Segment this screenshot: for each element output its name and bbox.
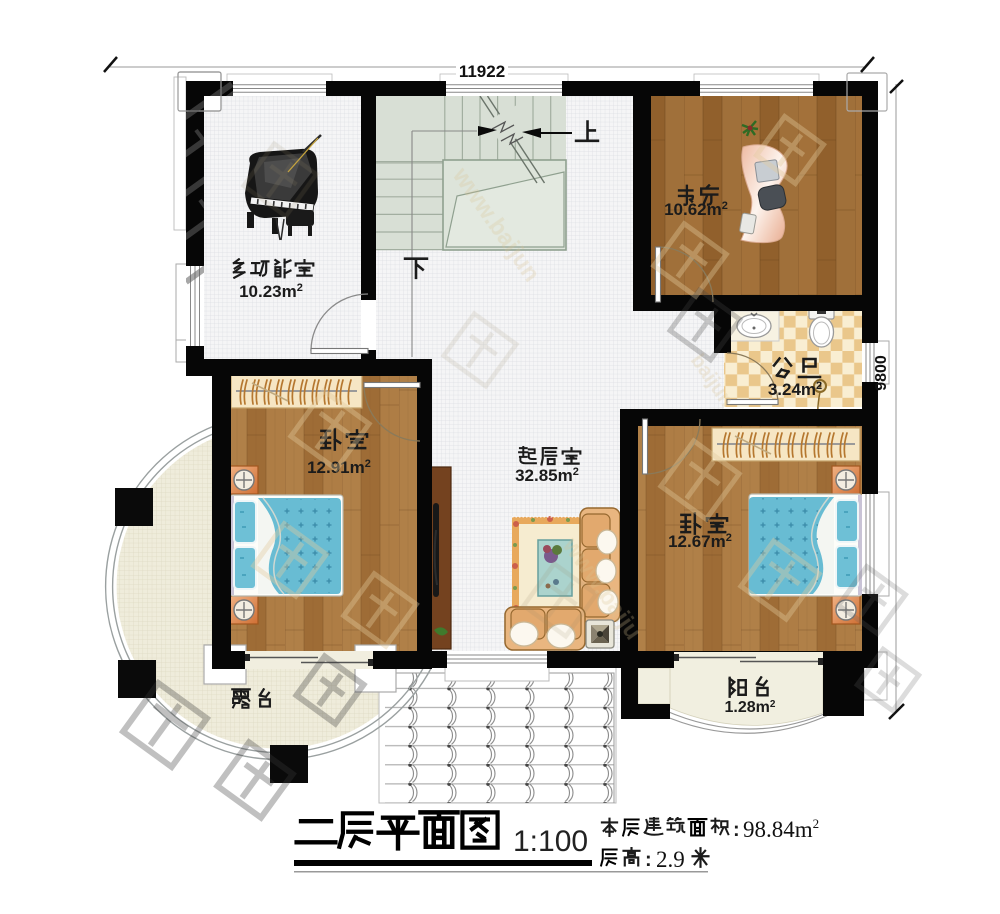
svg-text:32.85m2: 32.85m2: [515, 466, 579, 485]
svg-text:1:100: 1:100: [513, 825, 588, 858]
svg-text:9800: 9800: [873, 355, 890, 391]
svg-text::: :: [733, 819, 740, 841]
svg-text:11922: 11922: [459, 62, 505, 81]
svg-text:3.24m2: 3.24m2: [768, 380, 822, 399]
svg-text:10.62m2: 10.62m2: [664, 200, 728, 219]
svg-text::: :: [645, 849, 652, 871]
svg-text:10.23m2: 10.23m2: [239, 282, 303, 301]
svg-text:12.67m2: 12.67m2: [668, 532, 732, 551]
svg-text:2.9: 2.9: [656, 847, 685, 872]
svg-text:98.84m2: 98.84m2: [743, 816, 819, 842]
svg-text:1.28m2: 1.28m2: [725, 699, 776, 716]
